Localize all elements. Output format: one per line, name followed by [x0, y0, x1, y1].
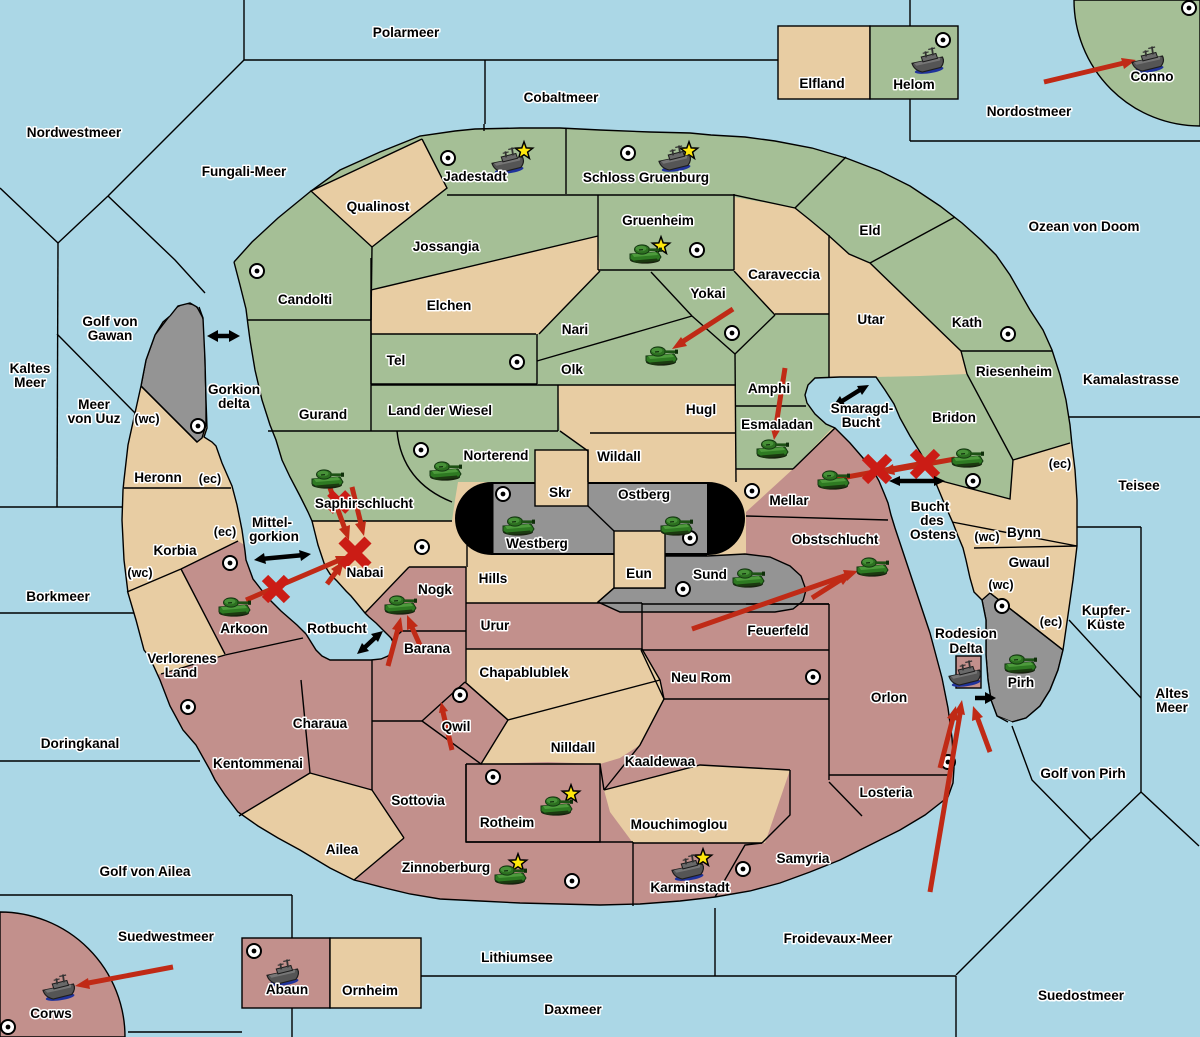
svg-text:Heronn: Heronn — [134, 470, 182, 485]
svg-text:Olk: Olk — [561, 362, 583, 377]
svg-text:Nordostmeer: Nordostmeer — [987, 104, 1072, 119]
svg-text:Schloss Gruenburg: Schloss Gruenburg — [583, 170, 709, 185]
svg-text:Suedwestmeer: Suedwestmeer — [118, 929, 215, 944]
svg-text:Meer: Meer — [1156, 700, 1188, 715]
svg-text:Pirh: Pirh — [1008, 675, 1034, 690]
svg-text:Rotheim: Rotheim — [480, 815, 534, 830]
svg-text:Ostens: Ostens — [910, 527, 956, 542]
svg-text:Meer: Meer — [78, 397, 110, 412]
svg-text:Land der Wiesel: Land der Wiesel — [388, 403, 492, 418]
svg-text:Kentommenai: Kentommenai — [213, 756, 303, 771]
svg-text:Qualinost: Qualinost — [347, 199, 410, 214]
svg-text:Charaua: Charaua — [293, 716, 348, 731]
svg-text:Westberg: Westberg — [506, 536, 568, 551]
svg-text:Golf von Ailea: Golf von Ailea — [100, 864, 191, 879]
svg-text:Abaun: Abaun — [266, 982, 308, 997]
svg-text:Eun: Eun — [626, 566, 652, 581]
svg-text:Barana: Barana — [404, 641, 451, 656]
svg-text:Gwaul: Gwaul — [1009, 555, 1050, 570]
svg-text:Zinnoberburg: Zinnoberburg — [402, 860, 490, 875]
svg-text:Froidevaux-Meer: Froidevaux-Meer — [784, 931, 893, 946]
svg-text:Qwil: Qwil — [442, 719, 471, 734]
svg-text:des: des — [920, 513, 943, 528]
svg-text:(wc): (wc) — [988, 578, 1013, 592]
svg-text:Verlorenes: Verlorenes — [147, 651, 217, 666]
svg-text:Chapablublek: Chapablublek — [479, 665, 569, 680]
svg-text:Delta: Delta — [949, 641, 983, 656]
svg-text:(wc): (wc) — [974, 530, 999, 544]
svg-text:(wc): (wc) — [134, 412, 159, 426]
svg-text:Sund: Sund — [693, 567, 727, 582]
svg-text:Jadestadt: Jadestadt — [443, 169, 507, 184]
svg-text:Wildall: Wildall — [597, 449, 641, 464]
svg-text:(ec): (ec) — [1040, 615, 1062, 629]
svg-text:Bridon: Bridon — [932, 410, 976, 425]
svg-text:(ec): (ec) — [1049, 457, 1071, 471]
svg-text:Meer: Meer — [14, 375, 46, 390]
svg-text:Elfland: Elfland — [799, 76, 844, 91]
svg-text:Kath: Kath — [952, 315, 982, 330]
svg-text:Obstschlucht: Obstschlucht — [792, 532, 879, 547]
svg-text:Kupfer-: Kupfer- — [1082, 603, 1130, 618]
svg-text:gorkion: gorkion — [249, 529, 299, 544]
svg-text:Daxmeer: Daxmeer — [544, 1002, 602, 1017]
svg-text:Utar: Utar — [857, 312, 885, 327]
svg-text:Jossangia: Jossangia — [413, 239, 480, 254]
svg-text:Smaragd-: Smaragd- — [831, 401, 894, 416]
svg-text:Mellar: Mellar — [769, 493, 809, 508]
svg-text:Amphi: Amphi — [748, 381, 790, 396]
svg-text:Hills: Hills — [479, 571, 508, 586]
svg-text:Samyria: Samyria — [777, 851, 830, 866]
svg-text:Conno: Conno — [1130, 69, 1173, 84]
svg-text:Gorkion: Gorkion — [208, 382, 260, 397]
svg-text:Altes: Altes — [1155, 686, 1188, 701]
svg-text:Cobaltmeer: Cobaltmeer — [524, 90, 599, 105]
svg-text:Rotbucht: Rotbucht — [307, 621, 367, 636]
svg-text:von Uuz: von Uuz — [68, 411, 121, 426]
svg-text:Tel: Tel — [387, 353, 406, 368]
svg-text:Helom: Helom — [893, 77, 935, 92]
svg-text:Ostberg: Ostberg — [618, 487, 670, 502]
svg-text:Eld: Eld — [859, 223, 880, 238]
svg-text:Bucht: Bucht — [842, 415, 881, 430]
svg-text:Küste: Küste — [1087, 617, 1125, 632]
svg-text:Urur: Urur — [481, 618, 510, 633]
svg-text:Gruenheim: Gruenheim — [622, 213, 694, 228]
svg-text:Borkmeer: Borkmeer — [26, 589, 90, 604]
svg-text:Yokai: Yokai — [690, 286, 725, 301]
svg-text:Arkoon: Arkoon — [220, 621, 268, 636]
svg-text:Golf von: Golf von — [82, 314, 137, 329]
svg-text:Golf von Pirh: Golf von Pirh — [1040, 766, 1125, 781]
svg-text:Gawan: Gawan — [88, 328, 133, 343]
svg-text:Polarmeer: Polarmeer — [373, 25, 440, 40]
svg-text:Rodesion: Rodesion — [935, 626, 997, 641]
svg-text:(ec): (ec) — [214, 525, 236, 539]
svg-text:Ailea: Ailea — [326, 842, 359, 857]
svg-text:delta: delta — [218, 396, 250, 411]
svg-text:Nordwestmeer: Nordwestmeer — [27, 125, 122, 140]
svg-text:Ozean von Doom: Ozean von Doom — [1028, 219, 1139, 234]
svg-text:Kaltes: Kaltes — [10, 361, 51, 376]
svg-text:Candolti: Candolti — [278, 292, 332, 307]
svg-text:Nari: Nari — [562, 322, 588, 337]
svg-text:Sottovia: Sottovia — [391, 793, 445, 808]
svg-text:(ec): (ec) — [199, 472, 221, 486]
svg-text:Teisee: Teisee — [1118, 478, 1160, 493]
svg-text:Bynn: Bynn — [1007, 525, 1041, 540]
svg-text:Bucht: Bucht — [911, 499, 950, 514]
svg-text:Fungali-Meer: Fungali-Meer — [202, 164, 287, 179]
svg-text:Corws: Corws — [30, 1006, 72, 1021]
svg-text:Kaaldewaa: Kaaldewaa — [625, 754, 696, 769]
svg-text:Kamalastrasse: Kamalastrasse — [1083, 372, 1179, 387]
svg-text:Gurand: Gurand — [299, 407, 347, 422]
svg-text:Korbia: Korbia — [153, 543, 196, 558]
svg-text:Nogk: Nogk — [418, 582, 452, 597]
svg-text:Neu Rom: Neu Rom — [671, 670, 731, 685]
svg-text:Nabai: Nabai — [346, 565, 383, 580]
svg-text:Doringkanal: Doringkanal — [41, 736, 120, 751]
svg-text:Saphirschlucht: Saphirschlucht — [315, 496, 414, 511]
svg-text:Ornheim: Ornheim — [342, 983, 398, 998]
svg-text:Losteria: Losteria — [860, 785, 913, 800]
svg-text:Karminstadt: Karminstadt — [650, 880, 730, 895]
svg-text:Elchen: Elchen — [427, 298, 472, 313]
svg-text:Hugl: Hugl — [686, 402, 716, 417]
svg-text:Land: Land — [165, 665, 197, 680]
svg-text:Esmaladan: Esmaladan — [741, 417, 813, 432]
svg-text:Norterend: Norterend — [464, 448, 529, 463]
svg-text:Skr: Skr — [549, 485, 572, 500]
svg-text:Mittel-: Mittel- — [252, 515, 292, 530]
svg-text:Orlon: Orlon — [871, 690, 907, 705]
svg-text:Feuerfeld: Feuerfeld — [747, 623, 808, 638]
svg-text:Lithiumsee: Lithiumsee — [481, 950, 553, 965]
svg-text:Nilldall: Nilldall — [551, 740, 596, 755]
svg-text:Mouchimoglou: Mouchimoglou — [631, 817, 728, 832]
svg-text:Caraveccia: Caraveccia — [748, 267, 820, 282]
svg-text:(wc): (wc) — [127, 566, 152, 580]
svg-text:Riesenheim: Riesenheim — [976, 364, 1052, 379]
svg-text:Suedostmeer: Suedostmeer — [1038, 988, 1125, 1003]
